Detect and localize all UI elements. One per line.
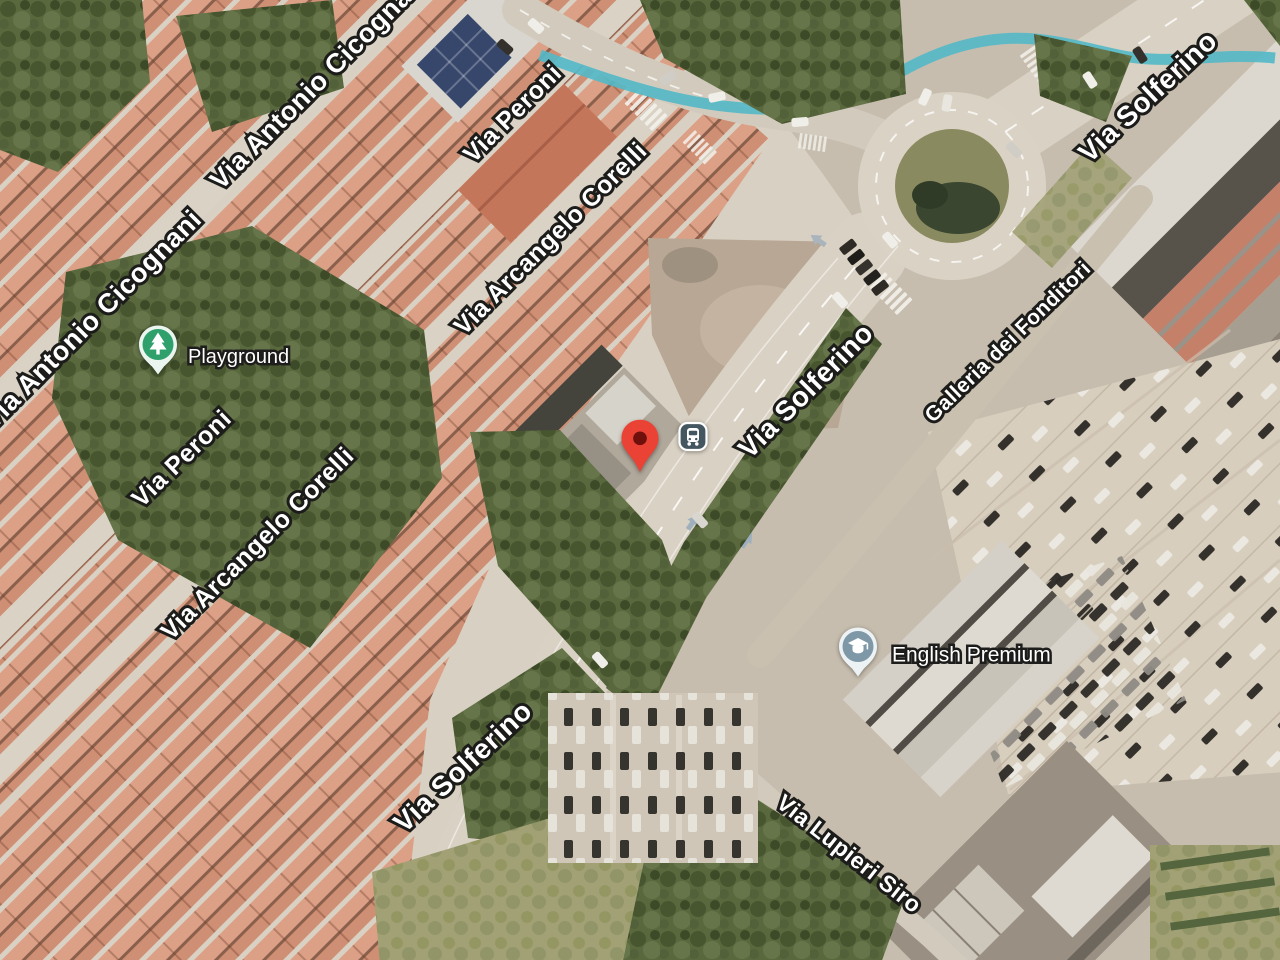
poi-label-playground[interactable]: Playground	[188, 347, 289, 367]
bus-icon	[678, 422, 708, 452]
map-pin-icon	[620, 418, 660, 474]
parking-lot-south	[548, 693, 758, 863]
bus-station-marker[interactable]	[678, 422, 708, 457]
map-canvas[interactable]: Via Antonio Cicognani Via Antonio Cicogn…	[0, 0, 1280, 960]
poi-pin-playground[interactable]	[134, 323, 182, 384]
evergreen-tree-icon	[134, 323, 182, 379]
poi-pin-english-premium[interactable]	[834, 625, 882, 686]
graduation-cap-icon	[834, 625, 882, 681]
roundabout	[858, 92, 1046, 280]
dropped-pin[interactable]	[620, 418, 660, 479]
poi-label-english-premium[interactable]: English Premium	[892, 645, 1051, 666]
